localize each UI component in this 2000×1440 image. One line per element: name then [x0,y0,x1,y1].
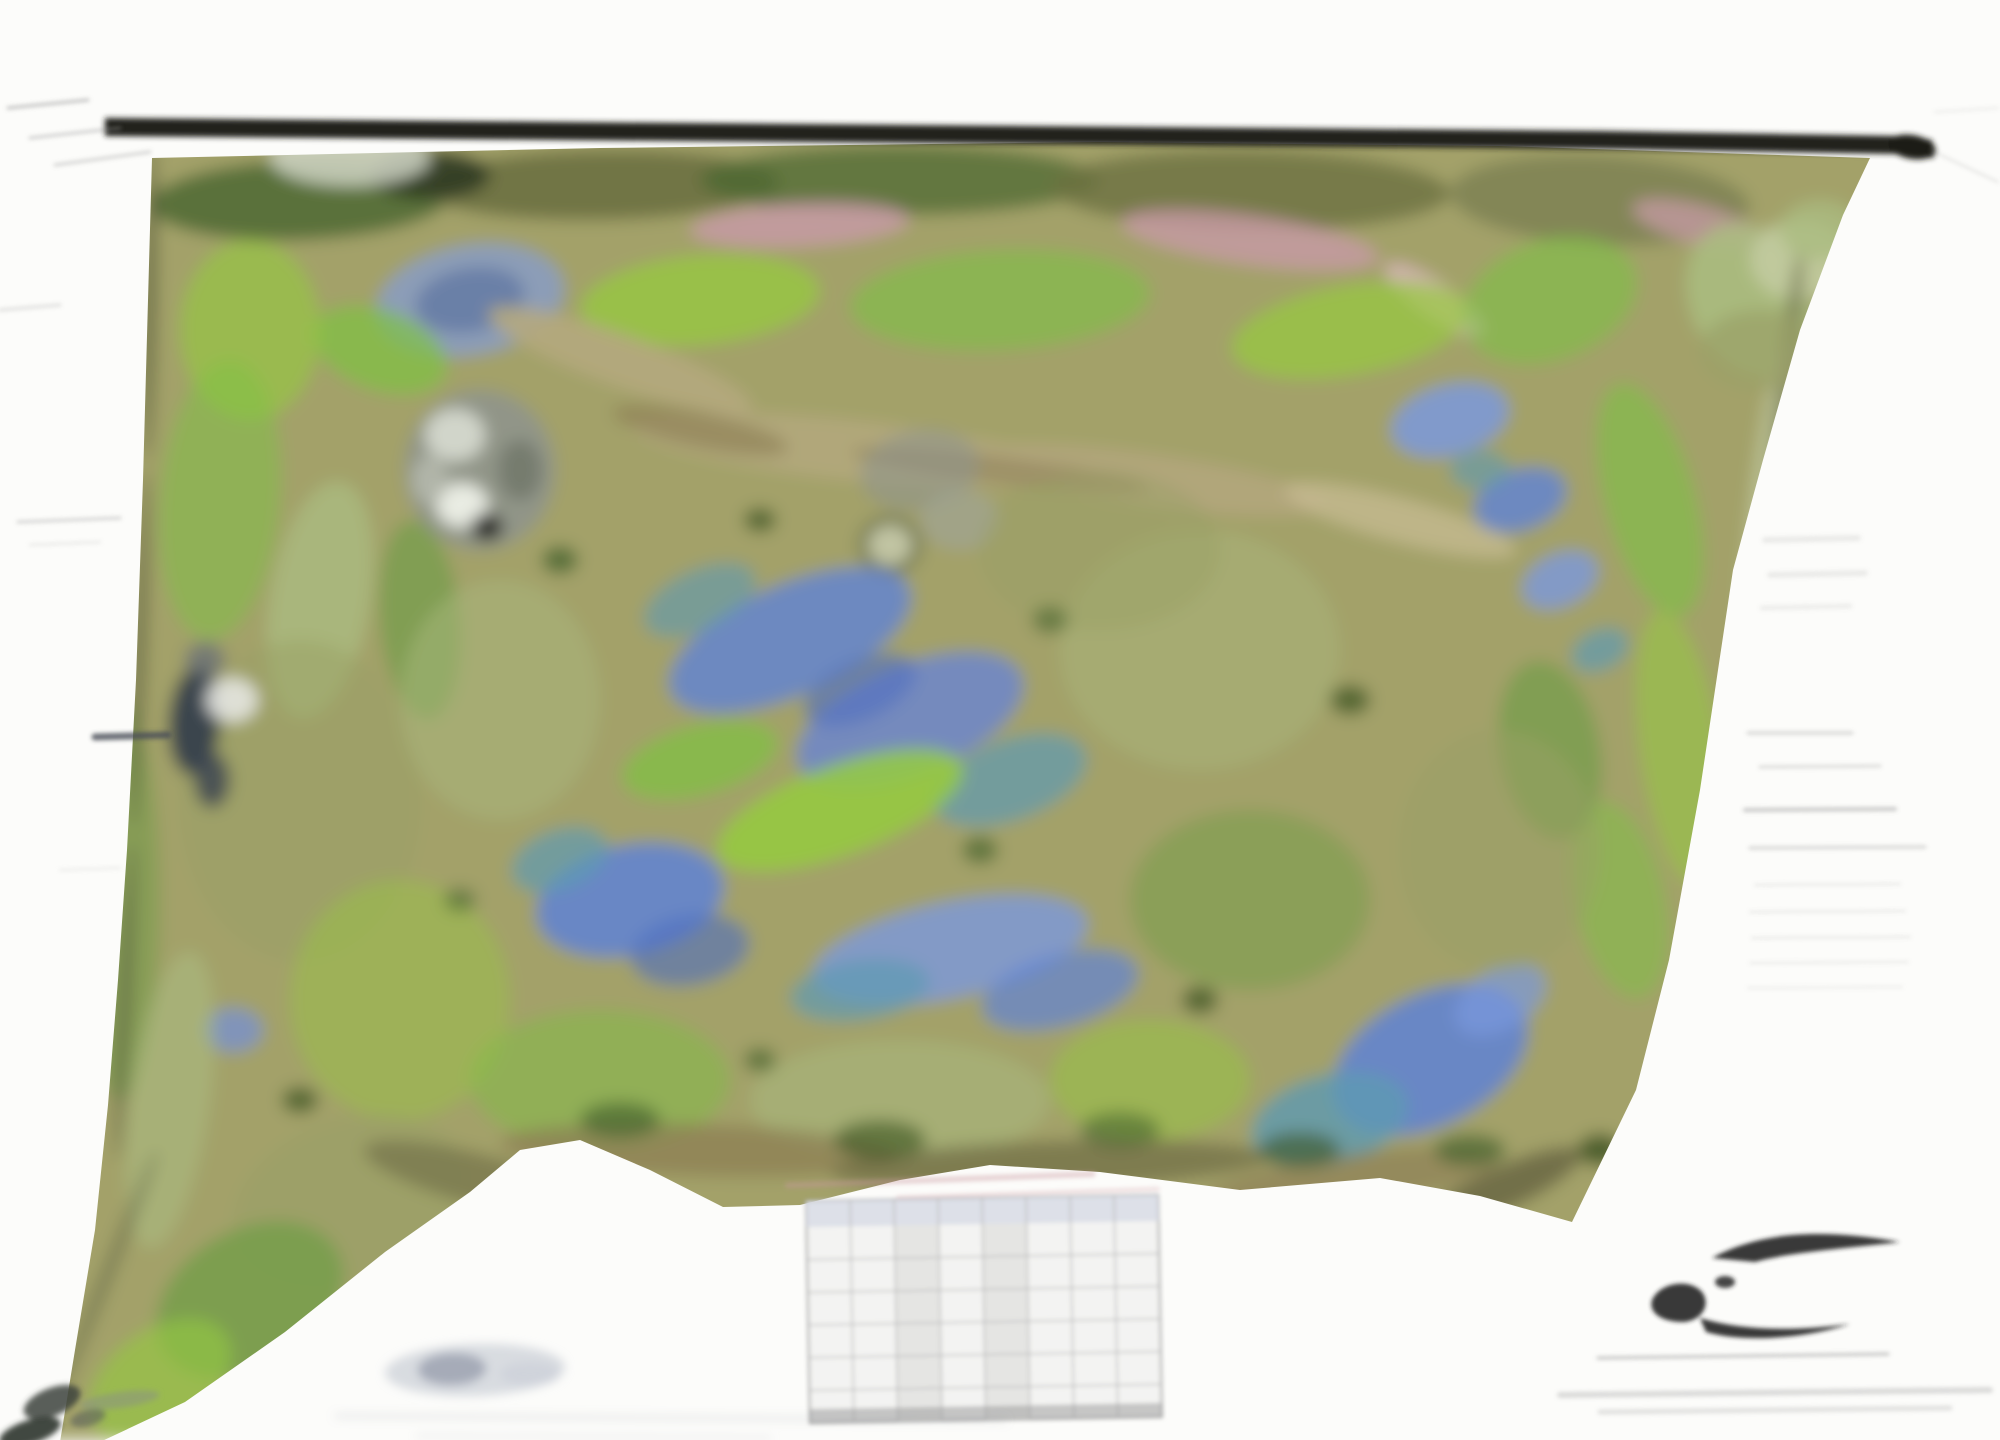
map-feature-blob [744,1048,776,1072]
map-feature-blob [400,580,600,820]
map-feature-blob [1400,730,1600,970]
right-note-line [1750,847,1925,848]
right-note-line [1762,606,1850,608]
map-feature-blob [1434,1134,1506,1166]
map-feature-blob [282,1087,318,1113]
right-note-line [1760,766,1880,767]
map-feature-blob [444,888,476,912]
map-feature-blob [185,642,225,678]
map-feature-blob [1450,450,1510,490]
right-note-line [1745,809,1895,810]
map-feature-blob [1130,810,1370,990]
right-note-line [1750,911,1905,912]
map-feature-blob [580,1102,660,1138]
map-feature-blob [834,1120,926,1160]
signature-dot [1715,1276,1735,1288]
map-feature-blob [425,409,485,461]
right-note-line [1755,884,1900,885]
map-feature-blob [1182,986,1218,1014]
right-note-line [1765,538,1858,540]
map-feature-blob [194,752,230,808]
right-note-line [1752,937,1910,938]
map-feature-blob [1330,685,1370,715]
yardage-table [788,1173,1162,1423]
logo-blob [500,1362,560,1386]
right-note-line [1770,573,1865,575]
map-feature-blob [962,836,998,864]
map-feature-blob [1080,1112,1160,1148]
site-plan-drawing [0,0,2000,1440]
plan-sheet [0,0,2000,1440]
map-feature-blob [744,508,776,532]
logo-underline [418,1436,770,1438]
map-feature-blob [700,145,1100,215]
map-feature-blob [868,525,912,565]
map-feature-blob [412,456,448,504]
right-note-line [1748,987,1902,988]
map-feature-blob [542,546,578,574]
map-feature-blob [471,513,503,541]
map-feature-blob [1032,606,1068,634]
map-feature-blob [980,470,1220,630]
map-feature-blob [498,440,542,500]
map-feature-blob [1260,1132,1340,1168]
margin-pen-mark [95,735,168,737]
right-note-line [1750,962,1908,963]
map-feature-blob [206,678,258,722]
